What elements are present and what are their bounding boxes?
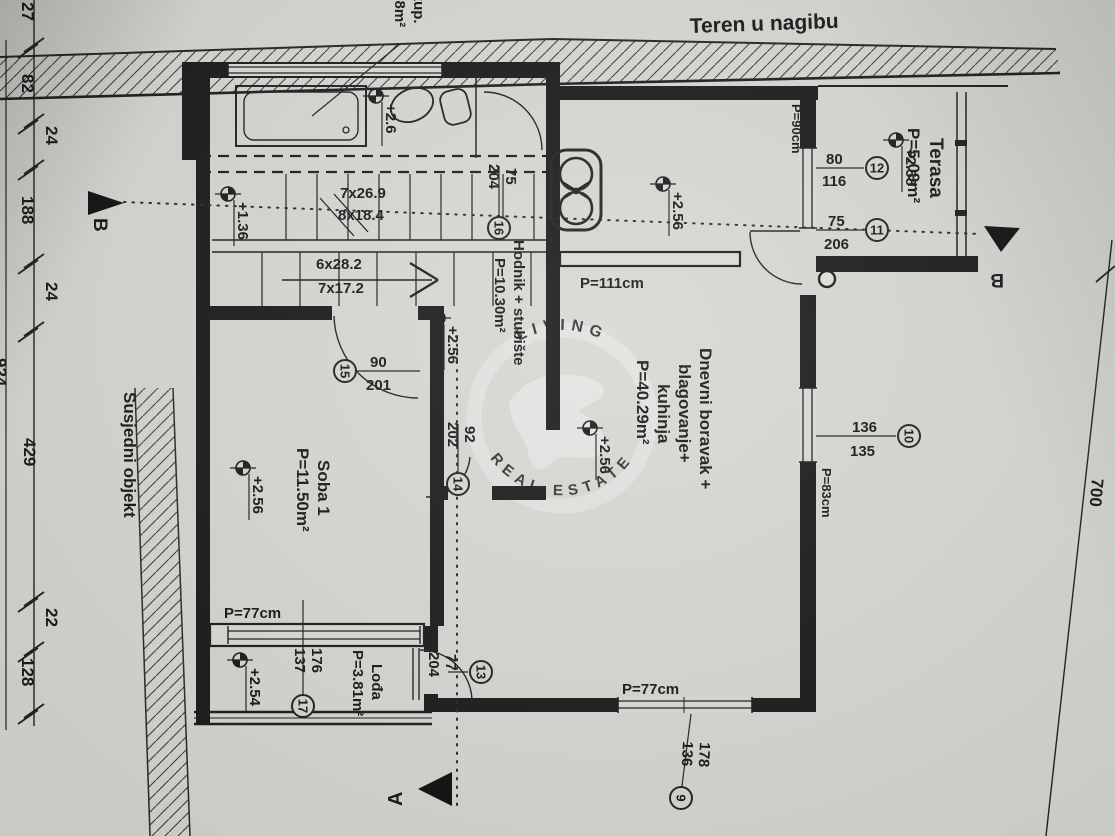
stair-flight1-risers: 7x26.9 <box>340 185 386 202</box>
parapet-living-east-label: P=83cm <box>819 468 834 518</box>
dim-22: 22 <box>42 608 61 627</box>
svg-text:204: 204 <box>485 164 502 190</box>
svg-text:204: 204 <box>425 652 442 678</box>
svg-text:P=3.81m²: P=3.81m² <box>349 650 366 716</box>
svg-text:80: 80 <box>826 151 843 168</box>
svg-text:178: 178 <box>695 742 713 768</box>
window-12 <box>799 148 817 228</box>
dim-429: 429 <box>20 438 39 466</box>
svg-text:.38m²: .38m² <box>391 0 408 27</box>
svg-text:206: 206 <box>824 236 849 253</box>
svg-text:+2.56: +2.56 <box>249 476 266 514</box>
parapet-kitchen-label: P=111cm <box>580 275 644 292</box>
svg-text:10: 10 <box>902 429 917 443</box>
kitchen-parapet <box>560 252 740 266</box>
svg-text:15: 15 <box>338 364 353 378</box>
svg-text:9: 9 <box>674 794 689 801</box>
section-b-left-label: B <box>89 218 110 232</box>
svg-text:P=10.30m²: P=10.30m² <box>491 258 508 333</box>
svg-text:75: 75 <box>828 213 845 230</box>
dim-24b: 24 <box>42 282 61 301</box>
svg-text:Hodnik + stubište: Hodnik + stubište <box>510 240 527 365</box>
svg-text:11: 11 <box>870 223 884 238</box>
svg-text:+2.56: +2.56 <box>669 192 686 230</box>
svg-text:77: 77 <box>442 654 459 671</box>
stair-flight2-treads: 7x17.2 <box>318 280 364 297</box>
svg-text:116: 116 <box>822 173 846 190</box>
parapet-living-south-label: P=77cm <box>622 681 679 698</box>
dim-82: 82 <box>18 74 37 93</box>
svg-text:+2.58: +2.58 <box>902 148 919 186</box>
floor-plan-drawing: LIVING REAL ESTATE Teren u nagibu Susjed… <box>0 0 1115 836</box>
svg-text:136: 136 <box>852 419 877 436</box>
parapet-soba-label: P=77cm <box>224 605 281 622</box>
svg-text:+2.56: +2.56 <box>444 326 461 364</box>
svg-text:+1.36: +1.36 <box>234 202 251 240</box>
svg-text:75: 75 <box>502 168 519 185</box>
svg-text:14: 14 <box>451 477 466 492</box>
svg-text:17: 17 <box>296 699 311 713</box>
svg-text:136: 136 <box>678 741 696 767</box>
window-9 <box>618 697 752 713</box>
svg-text:201: 201 <box>366 377 391 394</box>
svg-text:Terasa: Terasa <box>925 138 946 198</box>
svg-text:+2.56: +2.56 <box>596 436 613 474</box>
svg-text:90: 90 <box>370 354 387 371</box>
svg-text:13: 13 <box>474 665 489 679</box>
svg-text:12: 12 <box>870 161 884 176</box>
svg-text:Susjedni objekt: Susjedni objekt <box>120 392 139 518</box>
dim-27: 27 <box>18 2 37 21</box>
parapet-terasa-label: P=90cm <box>789 104 804 154</box>
section-a-label: A <box>385 792 407 806</box>
section-b-right-label: B <box>990 269 1004 290</box>
neighbor-label: Susjedni objekt <box>120 392 139 518</box>
svg-text:135: 135 <box>850 443 875 460</box>
column <box>819 271 835 287</box>
svg-text:blagovanje+: blagovanje+ <box>675 364 694 463</box>
svg-text:Soba 1: Soba 1 <box>314 460 333 516</box>
svg-text:Dnevni boravak +: Dnevni boravak + <box>696 348 715 489</box>
window-10 <box>799 388 817 462</box>
svg-text:92: 92 <box>461 426 478 443</box>
svg-text:176: 176 <box>308 648 325 673</box>
svg-text:P=40.29m²: P=40.29m² <box>633 360 652 445</box>
svg-text:+2.6: +2.6 <box>382 104 399 134</box>
svg-text:P=11.50m²: P=11.50m² <box>293 448 312 532</box>
dim-24a: 24 <box>42 126 61 145</box>
stair-flight2-risers: 6x28.2 <box>316 256 362 273</box>
dim-924-total: 924 <box>0 358 10 387</box>
soba-window-parapet <box>210 624 424 646</box>
bathroom-window <box>228 64 442 76</box>
svg-text:Lođa: Lođa <box>368 664 385 700</box>
floor-plan-photo: LIVING REAL ESTATE Teren u nagibu Susjed… <box>0 0 1115 836</box>
svg-text:+kup.: +kup. <box>410 0 427 24</box>
dim-700: 700 <box>1086 478 1107 508</box>
svg-text:kuhinja: kuhinja <box>654 384 673 444</box>
svg-text:137: 137 <box>291 648 308 673</box>
svg-text:16: 16 <box>492 221 507 235</box>
dim-188: 188 <box>18 196 37 224</box>
svg-text:+2.54: +2.54 <box>246 668 263 707</box>
svg-text:202: 202 <box>444 422 461 447</box>
dim-128: 128 <box>18 658 37 686</box>
